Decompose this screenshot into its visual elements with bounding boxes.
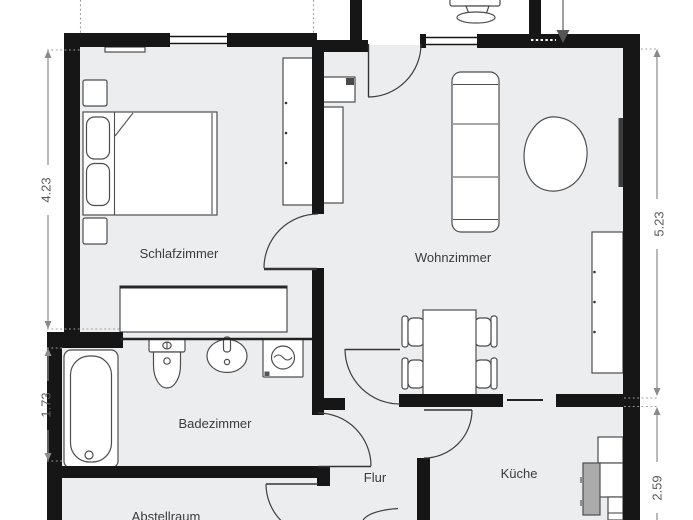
room-label-abstellraum: Abstellraum (132, 509, 201, 520)
toilet-drain (164, 358, 170, 364)
sideboard (592, 232, 623, 373)
lowboard (322, 107, 343, 203)
floorplan-canvas: 4.23 1.73 5.23 2.59 Schlafzimmer Wohnzim… (0, 0, 693, 520)
wardrobe-handle (285, 102, 288, 105)
bathtub-drain (85, 451, 93, 459)
wall-storage-east (317, 466, 330, 486)
washbasin-drain (224, 359, 229, 364)
wardrobe-handle (285, 132, 288, 135)
sideboard-handle (593, 271, 596, 274)
dimension-label: 1.73 (39, 392, 54, 417)
kitchen-cabinet (598, 437, 623, 463)
window-cap (477, 34, 483, 48)
pillow (87, 117, 110, 159)
chair (408, 360, 424, 388)
window-cap (164, 33, 170, 47)
wall-top-mid (229, 33, 317, 47)
radiator (105, 47, 145, 52)
pillow (87, 164, 110, 206)
wall-left-outer-lower (47, 332, 62, 520)
sideboard-handle (593, 301, 596, 304)
chair-back (402, 358, 408, 389)
wall-divider-upper (312, 43, 324, 214)
wardrobe (283, 58, 313, 205)
room-label-wohnzimmer: Wohnzimmer (415, 250, 492, 265)
bathtub-basin (71, 356, 112, 462)
wall-left-outer-upper (64, 33, 80, 336)
wall-vestibule-right (529, 0, 541, 34)
appliance-knob (580, 477, 583, 483)
beanbag (524, 117, 587, 191)
pedestal-top (450, 0, 500, 6)
dresser (120, 286, 287, 332)
room-label-schlafzimmer: Schlafzimmer (140, 246, 219, 261)
nightstand-top (83, 80, 107, 106)
tv (346, 78, 354, 85)
chair (475, 360, 491, 388)
pedestal-base (457, 12, 495, 23)
kitchen-cabinet (608, 497, 623, 520)
window-cap (227, 33, 233, 47)
chair-back (402, 316, 408, 347)
wall-right-outer (623, 34, 640, 520)
dimension-label: 2.59 (650, 475, 665, 500)
dimension-label: 4.23 (39, 177, 54, 202)
chair-back (491, 358, 497, 389)
wall-vestibule-left (350, 0, 362, 42)
kitchen-appliance (583, 463, 600, 515)
chair (408, 318, 424, 346)
wall-living-kitchen-east (556, 394, 623, 407)
dining-table (423, 310, 476, 396)
wall-flur-kitchen (417, 458, 430, 520)
room-label-kueche: Küche (501, 466, 538, 481)
appliance-knob (580, 500, 583, 506)
sofa (452, 72, 499, 232)
chair-back (491, 316, 497, 347)
wall-radiator (619, 118, 624, 187)
nightstand-bottom (83, 218, 107, 244)
room-label-flur: Flur (364, 470, 387, 485)
sideboard-handle (593, 331, 596, 334)
room-label-badezimmer: Badezimmer (179, 416, 253, 431)
wardrobe-handle (285, 162, 288, 165)
washing-machine-foot (265, 372, 270, 377)
wall-living-kitchen-west (399, 394, 503, 407)
wall-flur-stub (324, 398, 345, 410)
wall-bath-storage (62, 466, 318, 478)
kitchen-cabinet (598, 463, 623, 497)
chair (475, 318, 491, 346)
dimension-label: 5.23 (652, 211, 667, 236)
wall-divider-lower (312, 268, 324, 415)
floorplan-page: 4.23 1.73 5.23 2.59 Schlafzimmer Wohnzim… (0, 0, 693, 520)
